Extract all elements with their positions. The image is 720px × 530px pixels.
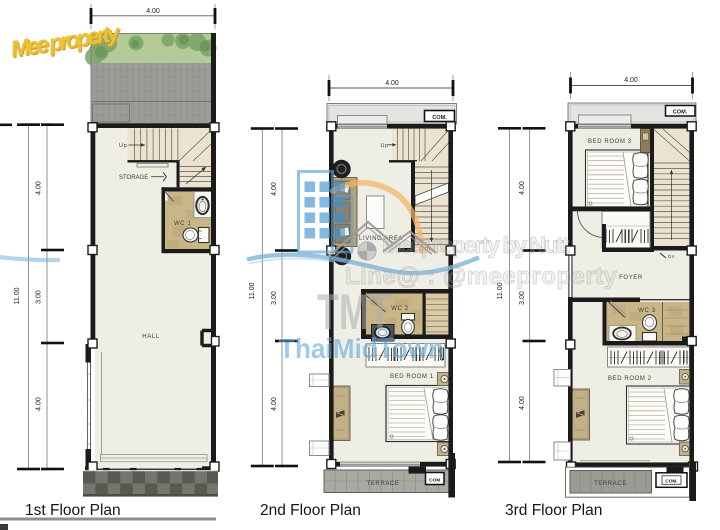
svg-text:HALL: HALL: [142, 334, 159, 340]
svg-text:WC 1: WC 1: [174, 221, 191, 227]
svg-text:BED ROOM 1: BED ROOM 1: [390, 374, 434, 380]
svg-text:Dn: Dn: [668, 254, 675, 259]
svg-text:Up: Up: [119, 143, 127, 149]
svg-text:TMT: TMT: [317, 284, 391, 340]
svg-text:11.00: 11.00: [249, 282, 256, 299]
svg-text:4.00: 4.00: [624, 77, 638, 84]
svg-text:4.00: 4.00: [519, 181, 526, 195]
svg-text:4.00: 4.00: [271, 397, 278, 411]
svg-text:COM.: COM.: [673, 110, 688, 116]
svg-text:2nd Floor Plan: 2nd Floor Plan: [260, 502, 361, 519]
svg-text:FOYER: FOYER: [619, 275, 643, 281]
svg-text:11.00: 11.00: [14, 287, 21, 304]
svg-text:Meeproperty by Nutt: Meeproperty by Nutt: [382, 232, 570, 258]
svg-text:1st Floor Plan: 1st Floor Plan: [25, 502, 121, 519]
svg-text:COM: COM: [429, 477, 440, 483]
svg-text:Up: Up: [381, 143, 389, 149]
svg-text:STORAGE: STORAGE: [119, 175, 148, 181]
svg-text:TERRACE: TERRACE: [367, 481, 400, 487]
svg-text:BED ROOM 2: BED ROOM 2: [608, 376, 652, 382]
svg-text:3rd Floor Plan: 3rd Floor Plan: [505, 502, 602, 519]
svg-text:WC 2: WC 2: [391, 306, 408, 312]
svg-text:4.00: 4.00: [36, 397, 43, 411]
svg-text:4.00: 4.00: [385, 80, 399, 87]
svg-text:TERRACE: TERRACE: [594, 481, 627, 487]
svg-text:4.00: 4.00: [519, 396, 526, 410]
svg-text:COM.: COM.: [432, 115, 447, 121]
svg-text:4.00: 4.00: [146, 8, 160, 15]
svg-text:COM.: COM.: [665, 479, 678, 485]
svg-text:ThaiMidTown: ThaiMidTown: [279, 333, 444, 364]
svg-text:4.00: 4.00: [36, 181, 43, 195]
svg-text:BED ROOM 3: BED ROOM 3: [588, 139, 632, 145]
svg-text:3.00: 3.00: [36, 290, 43, 304]
svg-text:3.00: 3.00: [519, 291, 526, 305]
svg-text:3.00: 3.00: [271, 291, 278, 305]
svg-text:4.00: 4.00: [271, 182, 278, 196]
svg-text:WC 3: WC 3: [638, 308, 655, 314]
